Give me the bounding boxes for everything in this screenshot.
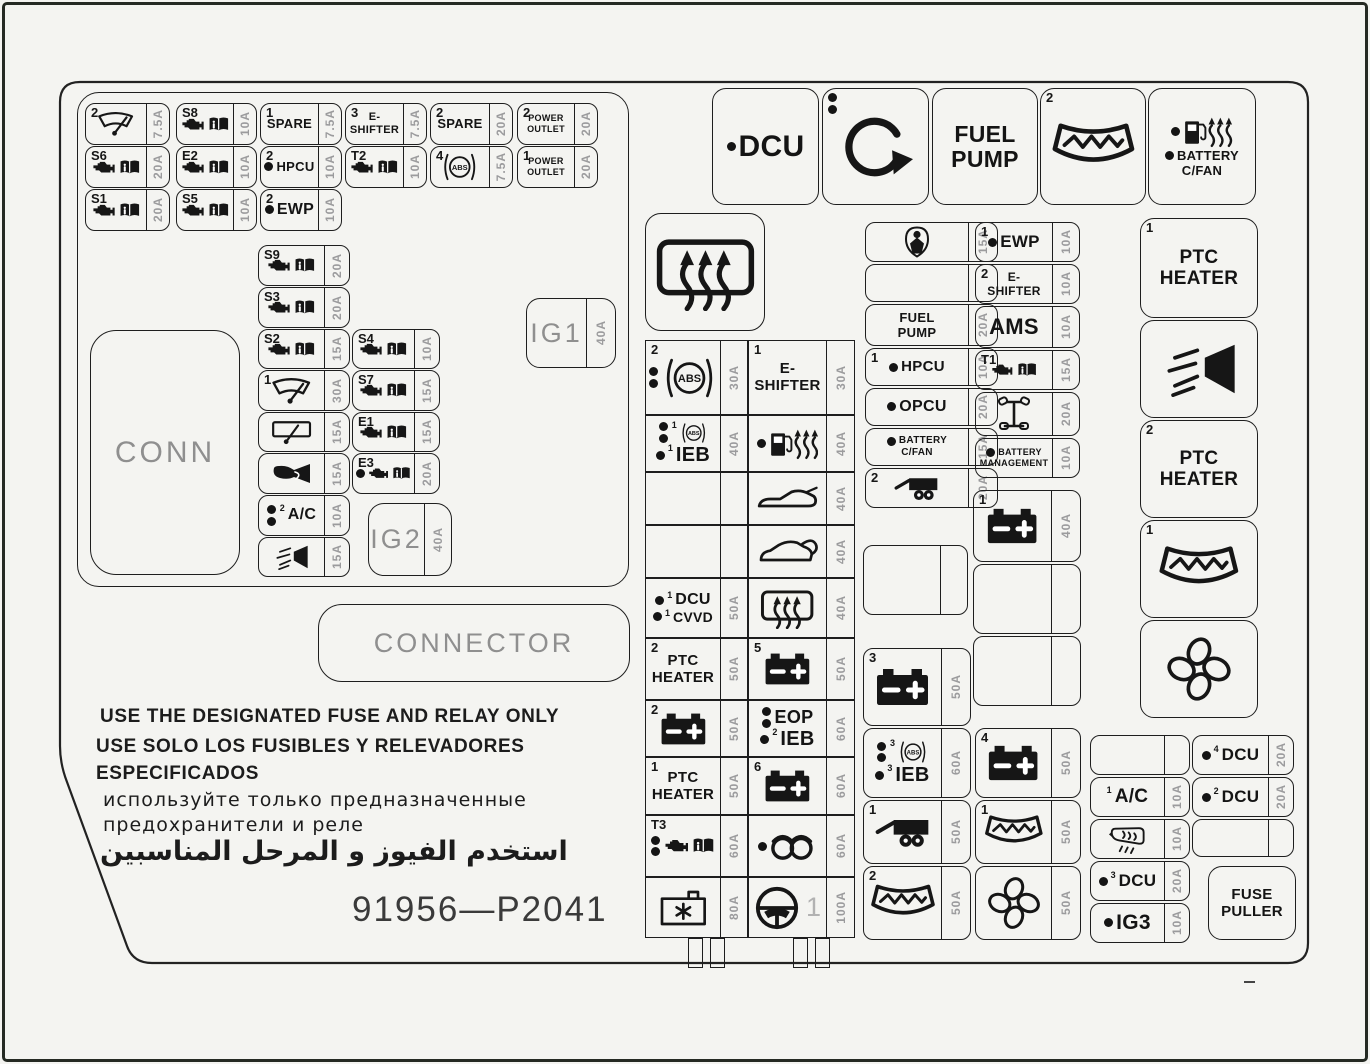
fuse-label: HEATER bbox=[1160, 470, 1239, 490]
relay-headlamp-washer bbox=[1140, 320, 1258, 418]
index-superscript: 2 bbox=[772, 727, 777, 737]
fuse-t3: T360A bbox=[645, 815, 748, 877]
relay-ptc-heater-1: 1PTCHEATER bbox=[1140, 218, 1258, 318]
fuse-number: 1 bbox=[981, 225, 988, 238]
relay-circulation bbox=[822, 88, 929, 205]
circuit-marker-dot bbox=[267, 505, 276, 514]
fuse-coolant-box: 80A bbox=[645, 877, 748, 938]
amp-rating: 20A bbox=[579, 154, 593, 179]
fuse-t1: T115A bbox=[975, 350, 1080, 390]
circuit-marker-dot bbox=[1099, 877, 1108, 886]
fuse-label: PTC bbox=[1180, 248, 1219, 268]
note-russian-2: предохранители и реле bbox=[103, 814, 364, 836]
fuse-label: POWER bbox=[528, 157, 564, 166]
fuse-battery-5: 550A bbox=[748, 638, 855, 700]
battery-icon bbox=[659, 711, 708, 747]
horn-icon bbox=[271, 461, 313, 487]
panel-mount-tab bbox=[793, 938, 808, 968]
fuse-trailer-1: 150A bbox=[863, 800, 971, 864]
part-number: 91956—P2041 bbox=[352, 890, 608, 930]
svg-text:ABS: ABS bbox=[452, 163, 468, 172]
amp-rating: 10A bbox=[1170, 784, 1184, 809]
fuse-number: 2 bbox=[436, 106, 443, 119]
amp-rating: 100A bbox=[834, 891, 848, 924]
fuelheat-icon bbox=[769, 428, 818, 460]
fuse-label: CONN bbox=[115, 437, 215, 469]
fuse-label: SHIFTER bbox=[987, 285, 1040, 298]
fuse-s1: S120A bbox=[85, 189, 170, 231]
amp-rating: 15A bbox=[330, 461, 344, 486]
fuse-label: FUEL bbox=[899, 311, 934, 325]
fuse-e2: E210A bbox=[176, 146, 257, 188]
fuse-e-shifter-1: 1E-SHIFTER30A bbox=[748, 340, 855, 415]
amp-rating: 40A bbox=[1059, 513, 1073, 538]
note-russian-1: используйте только предназначенные bbox=[103, 789, 527, 811]
fuse-empty-p8 bbox=[863, 545, 968, 615]
alignment-tick bbox=[1244, 981, 1255, 983]
fuse-number: 2 bbox=[651, 703, 658, 716]
note-spanish-1: USE SOLO LOS FUSIBLES Y RELEVADORES bbox=[96, 736, 525, 758]
wiper-icon bbox=[270, 378, 313, 404]
amp-rating: 40A bbox=[727, 431, 741, 456]
fuse-number: 2 bbox=[651, 343, 658, 356]
fuse-front-wiper-2: 27.5A bbox=[85, 103, 170, 145]
panel-mount-tab bbox=[710, 938, 725, 968]
fuse-front-wiper-1: 130A bbox=[258, 370, 350, 411]
fuse-spare-1: 1SPARE7.5A bbox=[260, 103, 342, 145]
circuit-marker-dot bbox=[887, 402, 896, 411]
amp-rating: 20A bbox=[494, 111, 508, 136]
circuit-marker-dot bbox=[877, 742, 886, 751]
fuse-t2: T210A bbox=[345, 146, 427, 188]
fuse-s7: S715A bbox=[352, 370, 440, 411]
amp-rating: 40A bbox=[834, 539, 848, 564]
book-icon bbox=[294, 341, 316, 358]
fuse-number: S2 bbox=[264, 332, 280, 345]
book-icon bbox=[392, 466, 411, 481]
fuse-label: EOP bbox=[775, 708, 814, 727]
fuse-number: T3 bbox=[651, 818, 666, 831]
circuit-marker-dot bbox=[760, 735, 769, 744]
index-superscript: 3 bbox=[887, 763, 892, 773]
fuse-label: HEATER bbox=[652, 787, 714, 803]
engine-icon bbox=[664, 837, 690, 855]
carconv-icon bbox=[755, 485, 819, 513]
fuse-ewp-2: 2EWP10A bbox=[260, 189, 342, 231]
amp-rating: 40A bbox=[431, 527, 445, 552]
fuse-number: 1 bbox=[871, 351, 878, 364]
battery-icon bbox=[763, 651, 812, 687]
index-superscript: 1 bbox=[672, 420, 677, 430]
windshield-icon bbox=[984, 813, 1044, 851]
index-superscript: 1 bbox=[668, 443, 673, 453]
fuse-empty-g4 bbox=[645, 525, 748, 578]
fuelheat-icon bbox=[1183, 116, 1232, 148]
amp-rating: 10A bbox=[1059, 271, 1073, 296]
svg-text:ABS: ABS bbox=[688, 431, 700, 437]
connector-box: CONNECTOR bbox=[318, 604, 630, 682]
index-superscript: 2 bbox=[1214, 786, 1219, 796]
fuse-battery-2: 250A bbox=[645, 700, 748, 757]
defrost-icon bbox=[760, 587, 814, 629]
circuit-marker-dot bbox=[267, 517, 276, 526]
amp-rating: 50A bbox=[949, 819, 963, 844]
amp-rating: 20A bbox=[1274, 742, 1288, 767]
fuse-label: A/C bbox=[288, 507, 316, 524]
fuse-number: S3 bbox=[264, 290, 280, 303]
fuse-number: S4 bbox=[358, 332, 374, 345]
relay-ptc-heater-2: 2PTCHEATER bbox=[1140, 420, 1258, 518]
amp-rating: 50A bbox=[834, 656, 848, 681]
fuse-s3: S320A bbox=[258, 287, 350, 328]
fuse-rear-wiper: 15A bbox=[258, 412, 350, 452]
amp-rating: 60A bbox=[727, 833, 741, 858]
book-icon bbox=[1017, 362, 1037, 378]
fuse-label: SPARE bbox=[437, 117, 482, 131]
amp-rating: 50A bbox=[1059, 750, 1073, 775]
circuit-marker-dot bbox=[649, 367, 658, 376]
fuse-label: PULLER bbox=[1221, 904, 1283, 920]
circuit-marker-dot bbox=[656, 451, 665, 460]
fuse-label: E- bbox=[1008, 271, 1021, 284]
fuse-s5: S510A bbox=[176, 189, 257, 231]
panel-mount-tab bbox=[688, 938, 703, 968]
fuse-label: SHIFTER bbox=[754, 378, 820, 394]
book-icon bbox=[208, 159, 230, 176]
amp-rating: 10A bbox=[330, 503, 344, 528]
circuit-marker-dot bbox=[889, 363, 898, 372]
fuse-empty-g3 bbox=[645, 472, 748, 525]
relay-cooling-fan bbox=[1140, 620, 1258, 718]
fuse-s9: S920A bbox=[258, 245, 350, 286]
book-icon bbox=[386, 341, 408, 358]
fuse-ig2: IG240A bbox=[368, 503, 452, 576]
rearwiper-icon bbox=[271, 419, 312, 445]
fuse-power-outlet-1: 1POWEROUTLET20A bbox=[517, 146, 598, 188]
note-spanish-2: ESPECIFICADOS bbox=[96, 763, 259, 785]
amp-rating: 80A bbox=[727, 895, 741, 920]
fuse-number: T2 bbox=[351, 149, 366, 162]
fuse-awd: 20A bbox=[975, 392, 1080, 436]
amp-rating: 7.5A bbox=[151, 109, 165, 138]
amp-rating: 60A bbox=[834, 716, 848, 741]
note-english: USE THE DESIGNATED FUSE AND RELAY ONLY bbox=[100, 706, 559, 728]
amp-rating: 50A bbox=[1059, 819, 1073, 844]
circuit-marker-dot bbox=[1202, 751, 1211, 760]
fuse-dcu-3: 3DCU20A bbox=[1090, 861, 1190, 901]
svg-text:ABS: ABS bbox=[678, 373, 701, 385]
fuse-number: 1 bbox=[1146, 523, 1153, 536]
amp-rating: 30A bbox=[834, 365, 848, 390]
book-icon bbox=[377, 159, 399, 176]
fuse-abs-4: 4ABS7.5A bbox=[430, 146, 513, 188]
book-icon bbox=[692, 837, 715, 855]
fuse-number: E3 bbox=[358, 456, 374, 469]
amp-rating: 20A bbox=[1170, 868, 1184, 893]
fuse-number: S8 bbox=[182, 106, 198, 119]
fuse-label: EWP bbox=[277, 202, 314, 219]
circuit-marker-dot bbox=[651, 836, 660, 845]
circuit-marker-dot bbox=[651, 847, 660, 856]
fuse-label: C/FAN bbox=[1182, 164, 1223, 178]
fuse-label: DCU bbox=[1222, 746, 1260, 764]
fuse-label: SHIFTER bbox=[350, 125, 399, 137]
fuse-ig1: IG140A bbox=[526, 298, 616, 368]
fuse-number: T1 bbox=[981, 353, 996, 366]
circuit-marker-dot bbox=[1202, 793, 1211, 802]
circarrow-icon bbox=[839, 110, 913, 184]
trailer-icon bbox=[875, 816, 931, 848]
fuse-empty-q9 bbox=[973, 636, 1081, 706]
amp-rating: 60A bbox=[834, 773, 848, 798]
circuit-marker-dot bbox=[875, 771, 884, 780]
fuse-label: BATTERY bbox=[998, 448, 1042, 457]
fuse-label: MANAGEMENT bbox=[980, 459, 1049, 468]
fuse-number: 1 bbox=[981, 803, 988, 816]
amp-rating: 10A bbox=[408, 154, 422, 179]
fuse-number: 4 bbox=[436, 149, 443, 162]
amp-rating: 20A bbox=[151, 154, 165, 179]
abs-icon: ABS bbox=[680, 422, 708, 444]
fuse-abs3-ieb3: 3ABS3IEB60A bbox=[863, 728, 971, 798]
fuse-label: DCU bbox=[1222, 788, 1260, 806]
amp-rating: 15A bbox=[330, 544, 344, 569]
fuse-glow-coil: 60A bbox=[748, 815, 855, 877]
fuse-number: 2 bbox=[1046, 91, 1053, 104]
amp-rating: 50A bbox=[727, 595, 741, 620]
fan-icon bbox=[1166, 636, 1232, 702]
fuse-label: IG3 bbox=[1116, 912, 1151, 934]
fuse-battery-management: BATTERYMANAGEMENT10A bbox=[975, 438, 1080, 478]
fuse-label: PTC bbox=[1180, 449, 1219, 469]
amp-rating: 7.5A bbox=[408, 109, 422, 138]
amp-rating: 30A bbox=[727, 365, 741, 390]
fuse-mirror-heater: 10A bbox=[1090, 819, 1190, 859]
windshield-icon bbox=[1051, 120, 1136, 174]
circuit-marker-dot bbox=[988, 238, 997, 247]
fuse-label: CVVD bbox=[673, 610, 713, 625]
circuit-marker-dot bbox=[653, 612, 662, 621]
amp-rating: 40A bbox=[594, 320, 608, 345]
fuse-label: EWP bbox=[1000, 233, 1040, 251]
fuse-number: 1 bbox=[264, 373, 271, 386]
fuse-label: OUTLET bbox=[527, 125, 565, 134]
fuse-hpcu-2: 2HPCU10A bbox=[260, 146, 342, 188]
amp-rating: 10A bbox=[420, 336, 434, 361]
book-icon bbox=[386, 382, 408, 399]
amp-rating: 40A bbox=[834, 486, 848, 511]
svg-text:ABS: ABS bbox=[907, 750, 920, 756]
fuse-label: IEB bbox=[780, 729, 814, 750]
fuse-spare-2: 2SPARE20A bbox=[430, 103, 513, 145]
index-superscript: 2 bbox=[280, 503, 285, 513]
fuse-number: 1 bbox=[979, 493, 986, 506]
fuse-number: S9 bbox=[264, 248, 280, 261]
index-superscript: 4 bbox=[1214, 744, 1219, 754]
index-superscript: 1 bbox=[1107, 785, 1112, 795]
amp-rating: 10A bbox=[323, 197, 337, 222]
fuse-ac-1: 1A/C10A bbox=[1090, 777, 1190, 817]
fuse-s6: S620A bbox=[85, 146, 170, 188]
index-superscript: 1 bbox=[665, 608, 670, 618]
fuse-number: 2 bbox=[981, 267, 988, 280]
amp-rating: 40A bbox=[834, 431, 848, 456]
fuse-label: IG1 bbox=[530, 319, 583, 347]
fuse-label: POWER bbox=[528, 114, 564, 123]
amp-rating: 30A bbox=[330, 378, 344, 403]
amp-rating: 10A bbox=[1170, 826, 1184, 851]
abs-icon: ABS bbox=[662, 356, 717, 400]
fuse-fuel-heater: 40A bbox=[748, 415, 855, 472]
amp-rating: 10A bbox=[238, 111, 252, 136]
fuse-number: S5 bbox=[182, 192, 198, 205]
amp-rating: 7.5A bbox=[323, 109, 337, 138]
fuse-label: E- bbox=[780, 361, 796, 377]
amp-rating: 15A bbox=[330, 419, 344, 444]
book-icon bbox=[294, 257, 316, 274]
fuse-label: IG2 bbox=[370, 525, 423, 553]
amp-rating: 15A bbox=[330, 336, 344, 361]
trailer-icon bbox=[894, 475, 940, 501]
fuse-label: FUSE bbox=[1231, 887, 1272, 903]
ghost-index: 1 bbox=[806, 892, 821, 923]
panel-mount-tab bbox=[815, 938, 830, 968]
fuse-abs-2: 2ABS30A bbox=[645, 340, 748, 415]
fan-icon bbox=[987, 876, 1041, 930]
fuse-number: S1 bbox=[91, 192, 107, 205]
circuit-marker-dot bbox=[887, 437, 896, 446]
circuit-marker-dot bbox=[659, 434, 668, 443]
fuse-steering-1: 1100A bbox=[748, 877, 855, 938]
windshield-icon bbox=[1158, 543, 1240, 595]
fuse-ptc-heater-2: 2PTCHEATER50A bbox=[645, 638, 748, 700]
fuse-liftgate: 40A bbox=[748, 525, 855, 578]
battery-icon bbox=[874, 666, 931, 708]
fuse-label: IEB bbox=[676, 445, 710, 466]
fuse-ams: AMS10A bbox=[975, 306, 1080, 348]
amp-rating: 20A bbox=[330, 295, 344, 320]
battery-icon bbox=[763, 768, 812, 804]
fuse-e1: E115A bbox=[352, 412, 440, 452]
relay-rear-defrost bbox=[645, 213, 765, 331]
fuse-empty-r1 bbox=[1090, 735, 1190, 775]
relay-fuel-pump: FUELPUMP bbox=[932, 88, 1038, 205]
fuse-puller-box: FUSEPULLER bbox=[1208, 866, 1296, 940]
fuse-ewp-1: 1EWP10A bbox=[975, 222, 1080, 262]
spray-icon bbox=[273, 544, 309, 570]
amp-rating: 50A bbox=[727, 716, 741, 741]
fuse-label: BATTERY bbox=[899, 436, 947, 447]
fuse-ac-2: 2A/C10A bbox=[258, 495, 350, 536]
amp-rating: 10A bbox=[238, 197, 252, 222]
fuse-e-shifter-2: 2E-SHIFTER10A bbox=[975, 264, 1080, 304]
awd-icon bbox=[998, 396, 1030, 432]
amp-rating: 50A bbox=[727, 656, 741, 681]
fuse-convertible: 40A bbox=[748, 472, 855, 525]
fuse-label: DCU bbox=[1119, 872, 1157, 890]
circuit-marker-dot bbox=[265, 205, 274, 214]
fuse-number: 1 bbox=[754, 343, 761, 356]
index-superscript: 3 bbox=[1111, 870, 1116, 880]
fuse-label: SPARE bbox=[267, 117, 312, 131]
fuse-abs1-ieb1: 1ABS1IEB40A bbox=[645, 415, 748, 472]
amp-rating: 10A bbox=[1059, 445, 1073, 470]
fuse-label: PTC bbox=[668, 770, 699, 786]
fuse-number: 2 bbox=[91, 106, 98, 119]
fuse-label: OPCU bbox=[899, 399, 946, 416]
fuse-battery-4: 450A bbox=[975, 728, 1081, 798]
fuse-number: E2 bbox=[182, 149, 198, 162]
fuse-empty-q8 bbox=[973, 564, 1081, 634]
abs-icon: ABS bbox=[898, 740, 928, 764]
coil-icon bbox=[770, 831, 816, 861]
circuit-marker-dot bbox=[986, 448, 995, 457]
circuit-marker-dot bbox=[727, 142, 736, 151]
fuse-battery-1: 140A bbox=[973, 490, 1081, 562]
fuse-label: AMS bbox=[989, 315, 1039, 338]
amp-rating: 50A bbox=[949, 890, 963, 915]
book-icon bbox=[119, 159, 141, 176]
circuit-marker-dot bbox=[758, 842, 767, 851]
fuse-label: PUMP bbox=[951, 147, 1019, 171]
fuse-battery-3: 350A bbox=[863, 648, 971, 726]
circuit-marker-dot bbox=[655, 596, 664, 605]
circuit-marker-dot bbox=[264, 162, 273, 171]
relay-windshield-deicer-2: 2 bbox=[1040, 88, 1146, 205]
circuit-marker-dot bbox=[828, 93, 837, 102]
amp-rating: 10A bbox=[323, 154, 337, 179]
fuse-label: HEATER bbox=[652, 670, 714, 686]
fuse-number: 4 bbox=[981, 731, 988, 744]
fuse-windshield-deicer-2: 250A bbox=[863, 866, 971, 940]
relay-battery-cfan: BATTERYC/FAN bbox=[1148, 88, 1256, 205]
spray-icon bbox=[1160, 341, 1238, 397]
fuse-label: BATTERY bbox=[1177, 149, 1239, 163]
note-arabic: استخدم الفيوز و المرحل المناسبين bbox=[100, 836, 568, 867]
amp-rating: 60A bbox=[949, 750, 963, 775]
fuse-number: 6 bbox=[754, 760, 761, 773]
fuse-e3: E320A bbox=[352, 453, 440, 494]
fuse-s4: S410A bbox=[352, 329, 440, 369]
fuse-label: PTC bbox=[668, 653, 699, 669]
amp-rating: 15A bbox=[420, 419, 434, 444]
fuse-empty-s3 bbox=[1192, 819, 1294, 857]
amp-rating: 10A bbox=[1170, 910, 1184, 935]
fuse-label: E- bbox=[369, 112, 381, 124]
fuse-label: A/C bbox=[1115, 787, 1149, 807]
fuse-number: 3 bbox=[351, 106, 358, 119]
circuit-marker-dot bbox=[877, 753, 886, 762]
fuse-number: 1 bbox=[869, 803, 876, 816]
relay-windshield-deicer-1: 1 bbox=[1140, 520, 1258, 618]
amp-rating: 40A bbox=[834, 595, 848, 620]
conn-box: CONN bbox=[90, 330, 240, 575]
circuit-marker-dot bbox=[762, 719, 771, 728]
amp-rating: 15A bbox=[1059, 357, 1073, 382]
amp-rating: 10A bbox=[238, 154, 252, 179]
fuse-rear-defrost: 40A bbox=[748, 578, 855, 638]
carlift-icon bbox=[757, 536, 818, 568]
amp-rating: 50A bbox=[949, 674, 963, 699]
fuse-number: 2 bbox=[869, 869, 876, 882]
fuse-number: 5 bbox=[754, 641, 761, 654]
fuse-number: S7 bbox=[358, 373, 374, 386]
fuse-s8: S810A bbox=[176, 103, 257, 145]
fuse-number: E1 bbox=[358, 415, 374, 428]
fuse-number: 2 bbox=[266, 192, 273, 205]
steering-icon bbox=[754, 885, 800, 931]
fuse-label: PUMP bbox=[898, 326, 937, 340]
